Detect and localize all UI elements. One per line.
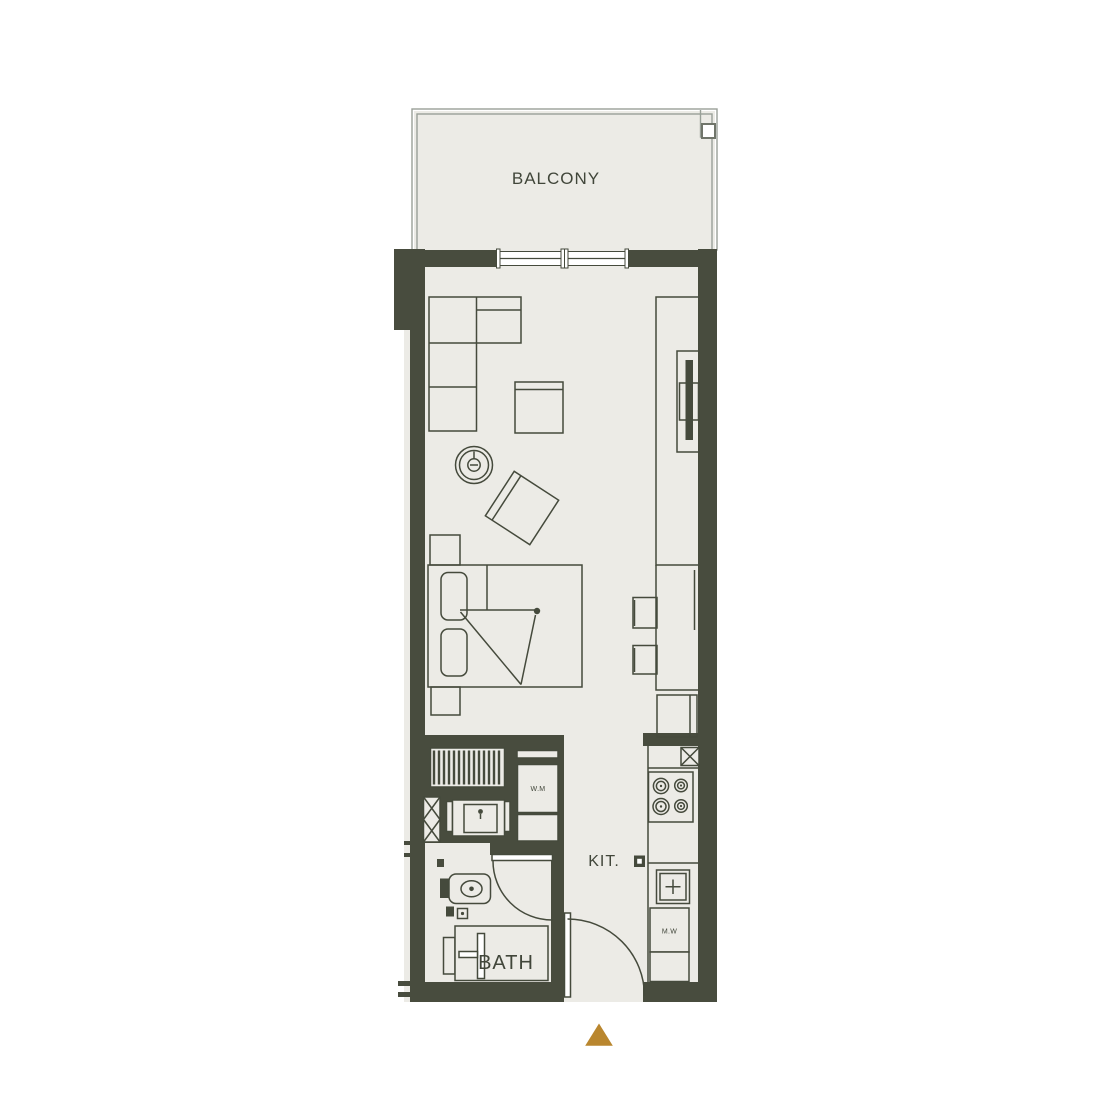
washing-machine-label: W.M: [531, 786, 546, 793]
floor-plan-page: BALCONY: [0, 0, 1100, 1100]
vanity-sink: [447, 800, 511, 836]
kitchen-sink-icon: [681, 748, 699, 766]
door-leaf: [565, 913, 571, 997]
balcony-window: [565, 249, 629, 268]
bath-label: BATH: [478, 952, 534, 974]
wall-bathroom-door-head: [490, 843, 564, 855]
microwave-label: M.W: [662, 929, 677, 936]
shelf: [517, 751, 558, 759]
kitchen-label: KIT.: [588, 853, 620, 870]
wall-bathroom-right: [551, 855, 564, 1002]
washing-machine: W.M: [517, 751, 558, 842]
door-leaf: [492, 855, 553, 861]
fridge: [657, 870, 690, 904]
entrance-marker-triangle: [585, 1024, 613, 1046]
balcony-area: BALCONY: [412, 109, 717, 250]
duct-shaft: [424, 797, 441, 842]
faucet-icon: [478, 809, 483, 814]
bath-faucet-handle: [459, 952, 478, 958]
microwave: M.W: [650, 908, 689, 952]
floor-plan-drawing: BALCONY: [0, 0, 1100, 1100]
balcony-corner-column: [702, 124, 715, 138]
wall-right: [698, 249, 717, 1002]
switch-icon: [634, 856, 645, 868]
balcony-label: BALCONY: [512, 169, 600, 188]
wall-top-segment: [410, 250, 498, 267]
wall-bottom-segment: [410, 982, 563, 1002]
bathtub: BATH: [444, 926, 549, 981]
wall-bottom-segment: [643, 982, 717, 1002]
balcony-window: [497, 249, 565, 268]
kitchen-base-cabinet: [650, 952, 689, 982]
wall-left: [410, 249, 425, 1002]
closet-hangers: [431, 748, 505, 787]
